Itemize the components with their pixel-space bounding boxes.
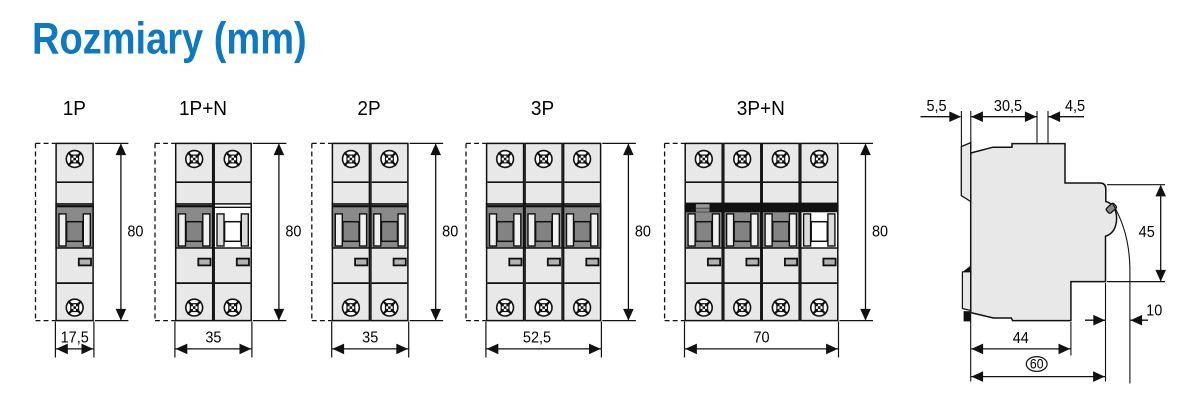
svg-text:70: 70 [753,329,769,347]
svg-text:35: 35 [205,329,221,347]
svg-text:30,5: 30,5 [994,98,1022,116]
svg-text:80: 80 [127,223,143,241]
svg-text:5,5: 5,5 [926,98,946,116]
svg-text:10: 10 [1146,302,1162,320]
svg-text:3P+N: 3P+N [737,98,785,121]
svg-text:4,5: 4,5 [1065,98,1085,116]
svg-text:1P+N: 1P+N [179,98,227,121]
svg-text:1P: 1P [63,98,86,121]
svg-text:60: 60 [1030,356,1044,372]
svg-text:Rozmiary (mm): Rozmiary (mm) [32,14,307,63]
svg-text:44: 44 [1013,329,1030,347]
svg-text:2P: 2P [357,98,380,121]
svg-text:3P: 3P [531,98,554,121]
svg-text:17,5: 17,5 [61,329,89,347]
svg-text:80: 80 [872,223,888,241]
svg-text:80: 80 [442,223,458,241]
svg-text:80: 80 [285,223,301,241]
svg-text:45: 45 [1139,224,1155,242]
svg-text:35: 35 [362,329,378,347]
svg-text:80: 80 [635,223,651,241]
svg-text:52,5: 52,5 [523,329,551,347]
